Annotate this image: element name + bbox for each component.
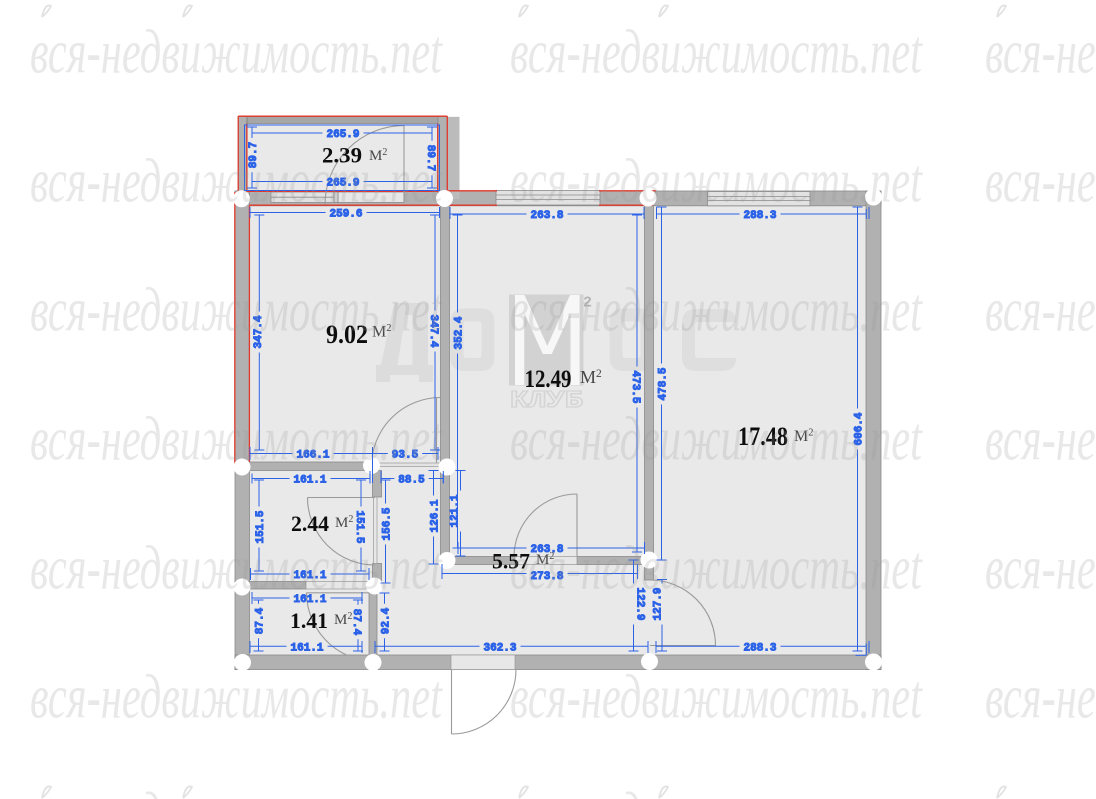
svg-text:вся-недвижимость.net: вся-недвижимость.net: [985, 406, 1096, 474]
svg-text:362.3: 362.3: [484, 642, 517, 654]
svg-text:вся-недвижимость.net: вся-недвижимость.net: [985, 148, 1096, 216]
svg-text:вся-недвижимость.net: вся-недвижимость.net: [985, 535, 1096, 603]
svg-text:1.41: 1.41: [290, 608, 328, 633]
svg-text:126.1: 126.1: [429, 499, 441, 532]
svg-text:478.5: 478.5: [657, 367, 669, 400]
svg-text:вся-недвижимость.net: вся-недвижимость.net: [510, 535, 923, 603]
svg-text:вся-недвижимость.net: вся-недвижимость.net: [30, 406, 443, 474]
svg-text:вся-недвижимость.net: вся-недвижимость.net: [985, 664, 1096, 732]
svg-text:вся-недвижимость.net: вся-недвижимость.net: [30, 781, 443, 799]
svg-text:2.44: 2.44: [291, 511, 329, 536]
svg-text:352.4: 352.4: [453, 316, 465, 349]
svg-text:вся-недвижимость.net: вся-недвижимость.net: [510, 664, 923, 732]
svg-text:вся-недвижимость.net: вся-недвижимость.net: [985, 19, 1096, 87]
svg-text:вся-недвижимость.net: вся-недвижимость.net: [510, 148, 923, 216]
svg-text:161.1: 161.1: [291, 642, 324, 654]
svg-text:161.1: 161.1: [294, 475, 327, 487]
svg-text:265.9: 265.9: [327, 129, 360, 141]
svg-text:вся-недвижимость.net: вся-недвижимость.net: [510, 781, 923, 799]
svg-text:12.49: 12.49: [525, 366, 572, 393]
svg-text:121.1: 121.1: [450, 494, 462, 527]
svg-text:92.4: 92.4: [380, 607, 392, 634]
svg-text:473.5: 473.5: [629, 371, 641, 404]
svg-text:вся-недвижимость.net: вся-недвижимость.net: [510, 277, 923, 345]
svg-text:87.4: 87.4: [254, 607, 266, 634]
svg-text:вся-недвижимость.net: вся-недвижимость.net: [30, 535, 443, 603]
svg-text:вся-недвижимость.net: вся-недвижимость.net: [30, 277, 443, 345]
svg-text:вся-недвижимость.net: вся-недвижимость.net: [30, 664, 443, 732]
svg-text:вся-недвижимость.net: вся-недвижимость.net: [985, 277, 1096, 345]
svg-text:88.5: 88.5: [398, 475, 425, 487]
svg-text:вся-недвижимость.net: вся-недвижимость.net: [510, 19, 923, 87]
svg-text:вся-недвижимость.net: вся-недвижимость.net: [30, 19, 443, 87]
svg-text:вся-недвижимость.net: вся-недвижимость.net: [510, 406, 923, 474]
svg-text:вся-недвижимость.net: вся-недвижимость.net: [30, 148, 443, 216]
svg-text:вся-недвижимость.net: вся-недвижимость.net: [985, 781, 1096, 799]
svg-text:288.3: 288.3: [744, 642, 777, 654]
